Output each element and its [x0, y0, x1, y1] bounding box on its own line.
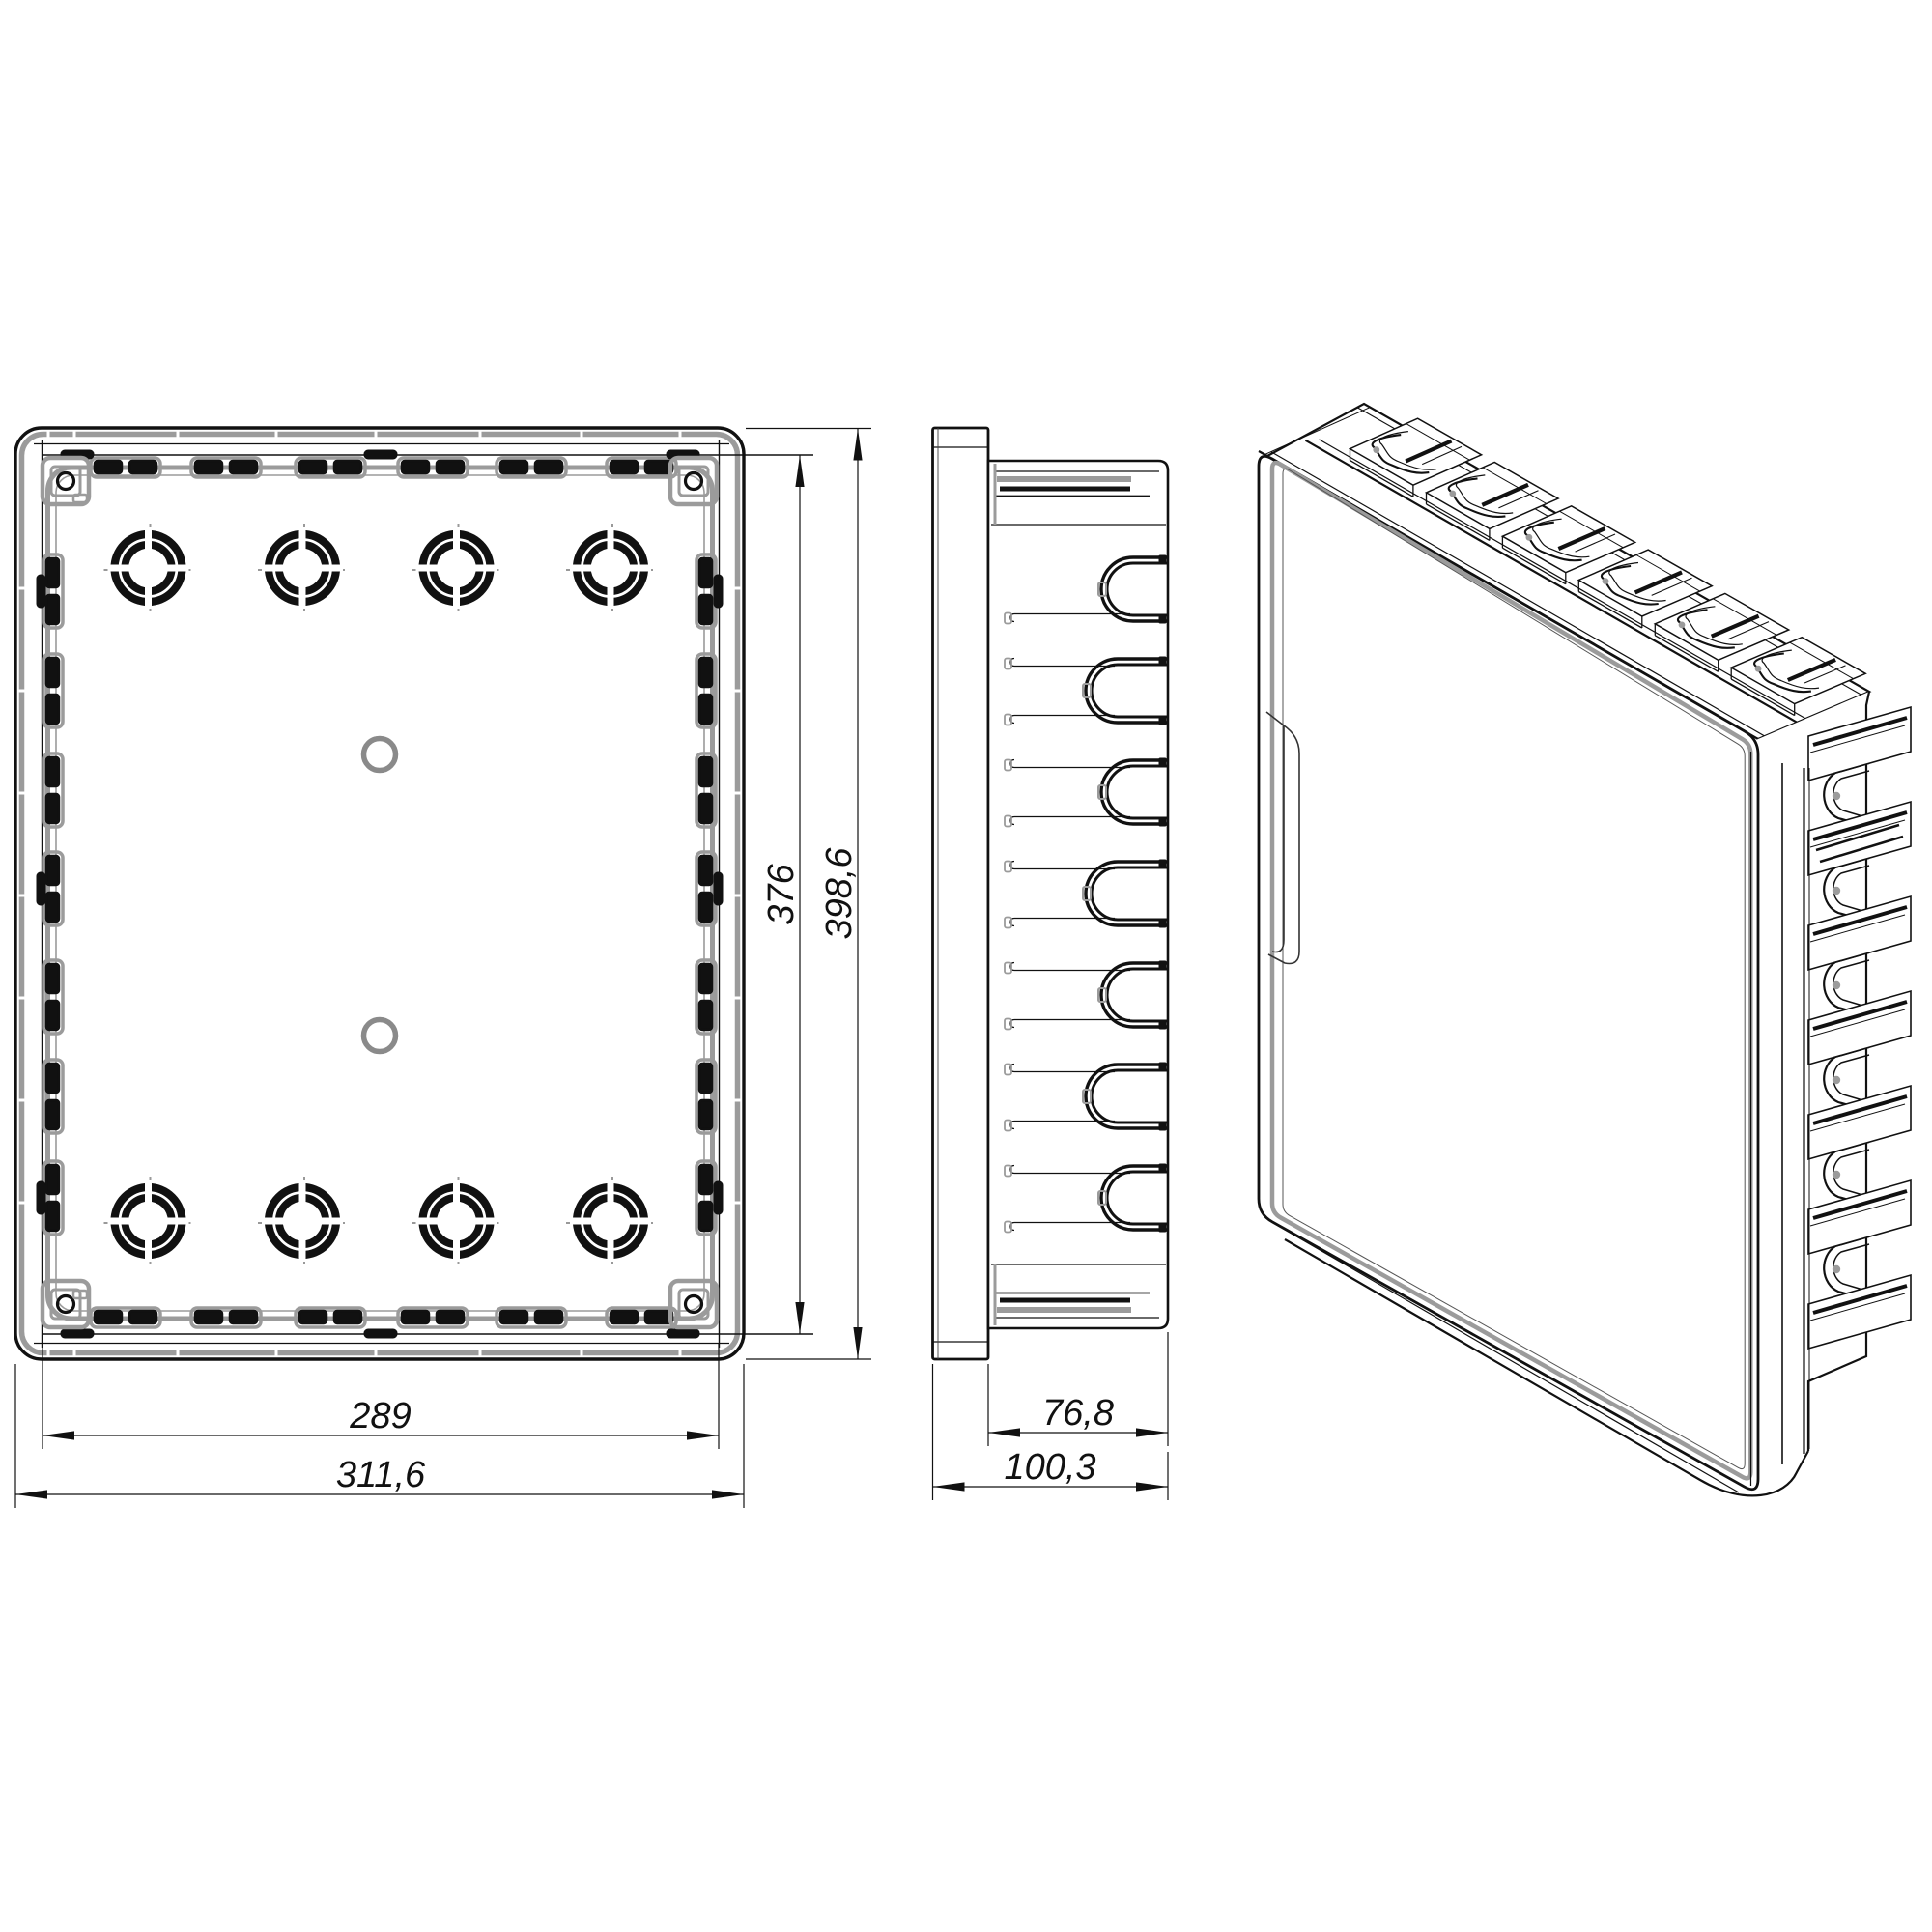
svg-text:376: 376	[761, 863, 802, 924]
svg-text:100,3: 100,3	[1004, 1447, 1095, 1488]
svg-text:289: 289	[349, 1396, 411, 1436]
svg-text:76,8: 76,8	[1042, 1393, 1114, 1434]
svg-text:398,6: 398,6	[819, 847, 860, 940]
svg-text:311,6: 311,6	[336, 1455, 426, 1495]
